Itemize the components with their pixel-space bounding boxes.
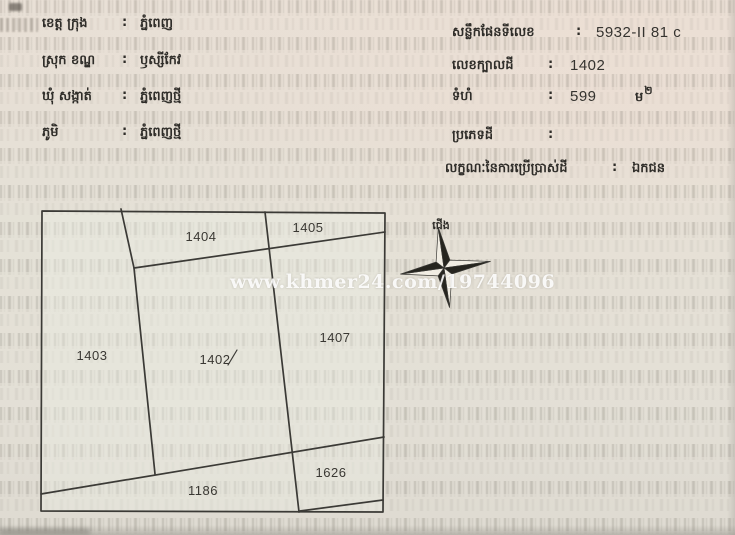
parcel-label-1186: 1186 [188,483,218,498]
parcel-label-1405: 1405 [293,220,324,235]
watermark-text: www.khmer24.com/19744096 [230,271,520,293]
parcel-label-1404: 1404 [186,229,217,244]
page-edge-shadow-bottom-left [0,528,90,535]
north-label: ជើង [432,218,449,232]
page-edge-shadow-right [727,0,735,535]
parcel-label-1407: 1407 [320,330,351,345]
cadastral-map: 1404 1405 1403 1402 1407 1186 1626 ជើង [0,0,735,535]
parcel-label-1626: 1626 [316,465,347,480]
page-edge-shadow-bottom [0,525,735,535]
compass-rose-icon [395,221,496,314]
parcel-label-1402: 1402 [200,352,231,367]
parcel-label-1403: 1403 [77,348,108,363]
scanned-land-title-document: ខេត្ត ក្រុង : ភ្នំពេញ ស្រុក ខណ្ឌ : ឫស្សី… [0,0,735,535]
